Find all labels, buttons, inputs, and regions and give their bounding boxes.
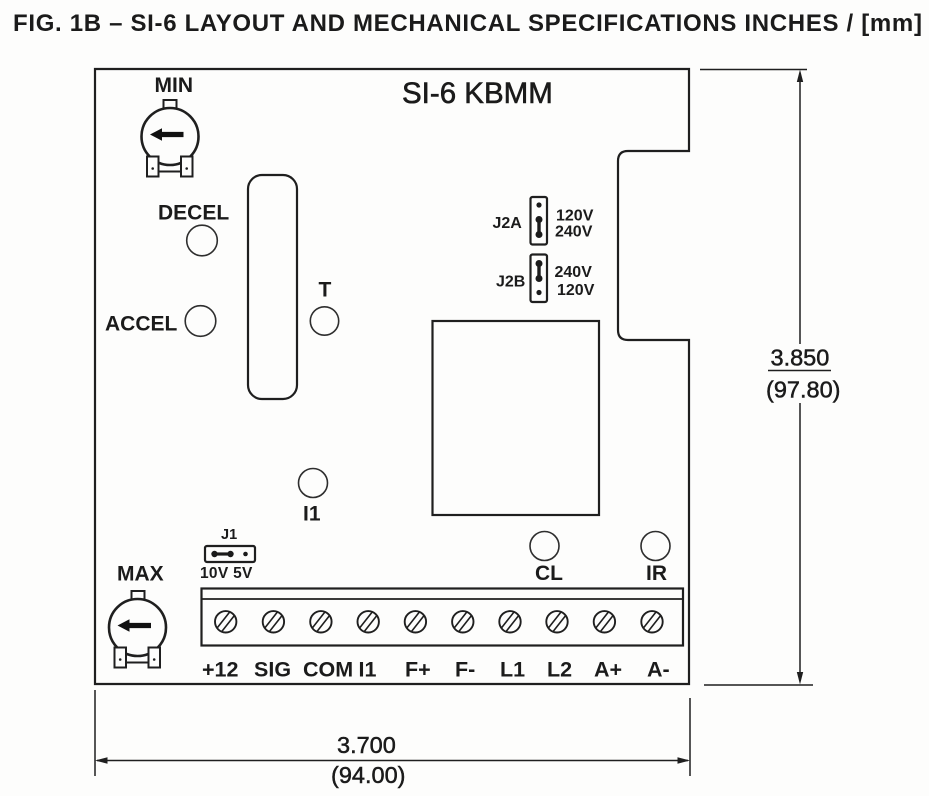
svg-text:3.700: 3.700 bbox=[337, 732, 396, 758]
svg-text:L1: L1 bbox=[500, 658, 525, 682]
svg-text:SI-6 KBMM: SI-6 KBMM bbox=[402, 77, 553, 110]
svg-text:A-: A- bbox=[647, 658, 670, 682]
svg-text:FIG. 1B – SI-6 LAYOUT AND MECH: FIG. 1B – SI-6 LAYOUT AND MECHANICAL SPE… bbox=[13, 10, 923, 37]
svg-text:CL: CL bbox=[535, 562, 563, 585]
svg-text:MIN: MIN bbox=[155, 74, 194, 97]
svg-text:10V 5V: 10V 5V bbox=[200, 565, 253, 582]
svg-text:COM: COM bbox=[303, 658, 353, 682]
svg-text:(94.00): (94.00) bbox=[331, 762, 405, 788]
svg-text:120V: 120V bbox=[557, 282, 595, 299]
svg-text:J2A: J2A bbox=[493, 215, 523, 232]
svg-text:240V: 240V bbox=[555, 224, 593, 241]
svg-text:MAX: MAX bbox=[117, 563, 164, 586]
svg-text:DECEL: DECEL bbox=[158, 202, 229, 225]
svg-text:J2B: J2B bbox=[496, 274, 525, 291]
svg-text:IR: IR bbox=[646, 562, 667, 585]
svg-text:L2: L2 bbox=[547, 658, 572, 682]
svg-text:A+: A+ bbox=[594, 658, 622, 682]
svg-text:ACCEL: ACCEL bbox=[105, 313, 178, 336]
svg-text:F-: F- bbox=[455, 658, 475, 682]
svg-text:240V: 240V bbox=[555, 264, 593, 281]
svg-text:3.850: 3.850 bbox=[771, 345, 830, 371]
svg-text:(97.80): (97.80) bbox=[766, 377, 840, 403]
svg-text:T: T bbox=[319, 279, 332, 302]
svg-text:I1: I1 bbox=[303, 503, 321, 526]
svg-text:I1: I1 bbox=[359, 658, 377, 682]
svg-text:SIG: SIG bbox=[254, 658, 291, 682]
svg-text:J1: J1 bbox=[221, 527, 237, 543]
svg-text:+12: +12 bbox=[202, 658, 239, 682]
svg-text:F+: F+ bbox=[405, 658, 431, 682]
svg-text:120V: 120V bbox=[556, 208, 594, 225]
